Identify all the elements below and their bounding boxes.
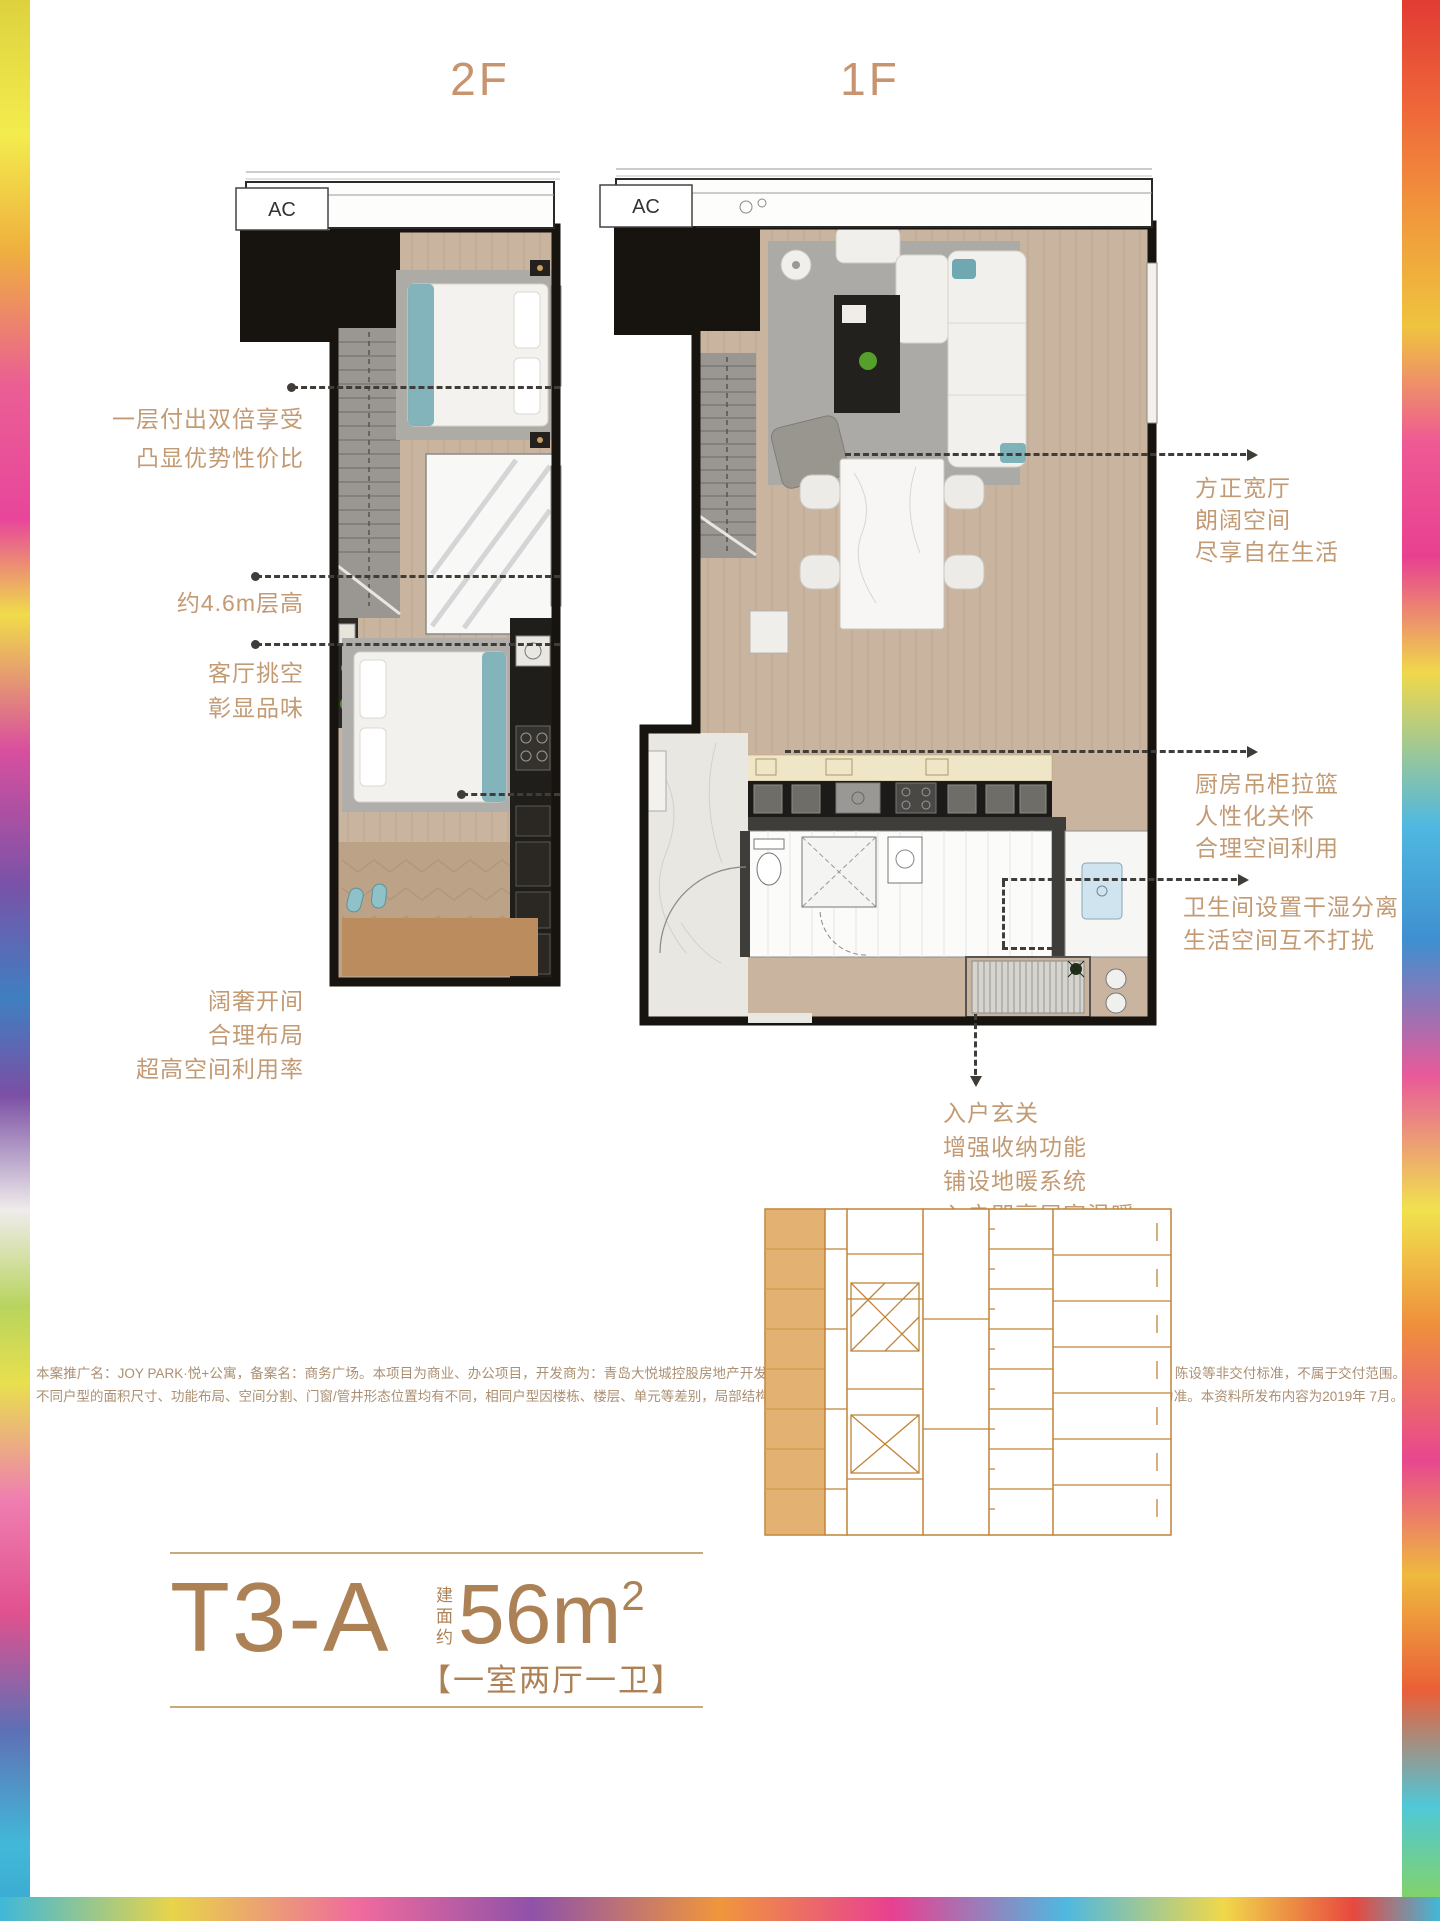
leader-1f-bathroom-drop <box>1002 881 1005 947</box>
annotation-line: 朗阔空间 <box>1195 504 1339 536</box>
bottom-color-strip <box>0 1897 1440 1921</box>
floor-title-2f: 2F <box>435 52 525 106</box>
leader-dot <box>251 640 260 649</box>
annotation-line: 生活空间互不打扰 <box>1183 924 1399 957</box>
ac-label-1f: AC <box>632 196 660 218</box>
left-color-strip <box>0 0 30 1921</box>
building-keyplan <box>753 1203 1185 1545</box>
floorplan-2f: AC <box>230 166 564 990</box>
annotation-line: 方正宽厅 <box>1195 472 1339 504</box>
area-number: 56m <box>458 1567 621 1661</box>
leader-1f-living <box>845 453 1255 456</box>
annotation-line: 超高空间利用率 <box>34 1052 304 1086</box>
leader-arrow <box>1247 449 1258 461</box>
annotation-line: 卫生间设置干湿分离 <box>1183 891 1399 924</box>
ac-label-2f: AC <box>268 199 296 221</box>
right-color-strip <box>1402 0 1440 1921</box>
area-superscript: 2 <box>621 1572 644 1619</box>
annotation-line: 彰显品味 <box>34 691 304 726</box>
annotation-line: 合理空间利用 <box>1195 832 1339 864</box>
annotation-line: 尽享自在生活 <box>1195 536 1339 568</box>
annotation-line: 阔奢开间 <box>34 984 304 1018</box>
annotation-wide-bay: 阔奢开间 合理布局 超高空间利用率 <box>34 984 304 1086</box>
leader-dot <box>287 383 296 392</box>
floorplan-1f: AC <box>596 163 1162 1065</box>
annotation-line: 约4.6m层高 <box>34 588 304 618</box>
unit-code: T3-A <box>170 1568 390 1666</box>
leader-2f-height <box>256 575 560 578</box>
annotation-line: 铺设地暖系统 <box>943 1164 1135 1198</box>
annotation-line: 一层付出双倍享受 <box>34 400 304 439</box>
leader-1f-entry <box>974 1014 977 1084</box>
disclaimer-text: 本案推广名：JOY PARK·悦+公寓，备案名：商务广场。本项目为商业、办公项目… <box>36 1363 1406 1408</box>
annotation-living-room: 方正宽厅 朗阔空间 尽享自在生活 <box>1195 472 1339 568</box>
floor-title-1f: 1F <box>825 52 915 106</box>
leader-1f-bathroom-foot <box>1002 947 1062 950</box>
leader-2f-double-enjoy <box>292 386 560 389</box>
leader-dot <box>457 790 466 799</box>
annotation-bathroom: 卫生间设置干湿分离 生活空间互不打扰 <box>1183 891 1399 957</box>
annotation-void-living: 客厅挑空 彰显品味 <box>34 656 304 726</box>
annotation-line: 合理布局 <box>34 1018 304 1052</box>
annotation-line: 厨房吊柜拉篮 <box>1195 768 1339 800</box>
leader-2f-void <box>256 643 560 646</box>
annotation-double-enjoy: 一层付出双倍享受 凸显优势性价比 <box>34 400 304 478</box>
annotation-ceiling-height: 约4.6m层高 <box>34 588 304 618</box>
unit-layout-tag: 【一室两厅一卫】 <box>420 1655 684 1700</box>
annotation-line: 客厅挑空 <box>34 656 304 691</box>
leader-dot <box>251 572 260 581</box>
annotation-line: 人性化关怀 <box>1195 800 1339 832</box>
rule-top <box>170 1552 703 1554</box>
leader-1f-kitchen <box>785 750 1255 753</box>
annotation-line: 入户玄关 <box>943 1096 1135 1130</box>
leader-2f-bay <box>462 793 560 796</box>
poster-canvas: 2F 1F <box>0 0 1440 1921</box>
annotation-line: 凸显优势性价比 <box>34 439 304 478</box>
rule-bottom <box>170 1706 703 1708</box>
leader-arrow <box>970 1076 982 1087</box>
leader-1f-bathroom <box>1002 878 1246 881</box>
unit-area-value: 56m2 <box>458 1572 645 1656</box>
unit-area-prefix: 建面约 <box>430 1586 455 1656</box>
leader-arrow <box>1238 874 1249 886</box>
leader-arrow <box>1247 746 1258 758</box>
annotation-line: 增强收纳功能 <box>943 1130 1135 1164</box>
annotation-kitchen: 厨房吊柜拉篮 人性化关怀 合理空间利用 <box>1195 768 1339 864</box>
